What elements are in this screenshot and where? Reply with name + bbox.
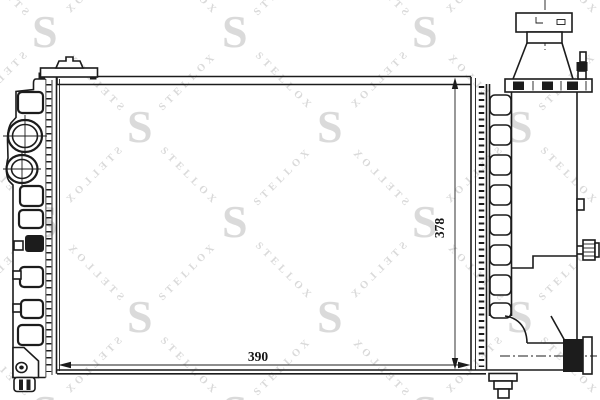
tank-body-diagonal xyxy=(551,316,565,341)
drain-plug-mid xyxy=(494,381,512,389)
tank-slot xyxy=(20,267,43,287)
funnel-left-slope xyxy=(513,43,527,79)
bleed-screw-cap xyxy=(595,243,599,257)
comb-fins xyxy=(490,95,511,318)
foot-rib xyxy=(27,380,31,391)
tank-body-step xyxy=(512,256,578,268)
dim-width-label: 390 xyxy=(248,349,269,364)
tank-slot-dark xyxy=(25,235,44,252)
comb-fin xyxy=(490,185,511,205)
tank-knob xyxy=(13,271,21,279)
comb-fin xyxy=(490,245,511,265)
tank-slot xyxy=(21,300,43,318)
top-flange-strip xyxy=(505,79,592,92)
comb-fin xyxy=(490,275,511,295)
dimension-height: 378 xyxy=(432,78,458,370)
filler-cap xyxy=(516,13,572,32)
outlet-pipe xyxy=(500,337,597,374)
clip-nub xyxy=(56,57,83,68)
drain-plug-tip xyxy=(498,389,509,398)
filler-neck xyxy=(513,0,588,79)
dim-height-arrow-up xyxy=(452,78,458,90)
dim-height-arrow-down xyxy=(452,358,458,370)
dim-width-arrow-left xyxy=(59,362,72,368)
comb-fin xyxy=(490,155,511,175)
top-mounting-clip xyxy=(39,57,98,80)
bleed-screw xyxy=(577,240,599,260)
vent-valve-stem xyxy=(580,52,586,62)
bleed-screw-body xyxy=(583,240,595,260)
drain-plug-base xyxy=(489,374,517,382)
dim-height-label: 378 xyxy=(432,218,447,239)
vent-valve-base xyxy=(578,71,586,79)
flange-slot xyxy=(513,82,524,91)
tank-slot xyxy=(20,186,43,206)
dimension-width: 390 xyxy=(59,349,471,368)
tank-knob xyxy=(13,304,21,312)
funnel-right-slope xyxy=(562,43,573,79)
outlet-bend xyxy=(505,316,527,343)
tank-knob xyxy=(14,241,23,250)
foot-rib xyxy=(19,380,23,391)
comb-fin xyxy=(490,215,511,235)
radiator-drawing-canvas: SSTELLOXSTELLOXSSTELLOXSTELLOXSSTELLOXST… xyxy=(0,0,600,400)
vent-valve-head xyxy=(577,62,588,71)
bracket-grommet-hole xyxy=(19,366,24,370)
pipe-end-flange xyxy=(583,337,592,374)
drain-plug xyxy=(489,374,517,399)
mounting-foot xyxy=(14,378,35,392)
tank-slot xyxy=(19,210,43,228)
pipe-hose-coupler xyxy=(563,339,583,372)
comb-fin xyxy=(490,125,511,145)
clip-bar xyxy=(41,68,98,77)
side-lug xyxy=(577,199,584,210)
flange-slot xyxy=(542,82,553,91)
filler-throat xyxy=(527,32,562,43)
radiator-core xyxy=(46,77,564,378)
right-tank xyxy=(489,0,599,398)
dim-width-arrow-right xyxy=(458,362,471,368)
tank-slot xyxy=(18,325,43,345)
tank-slot xyxy=(18,92,43,113)
flange-slot xyxy=(567,82,578,91)
radiator-line-art: 378 390 xyxy=(0,0,600,400)
comb-fin xyxy=(490,95,511,115)
